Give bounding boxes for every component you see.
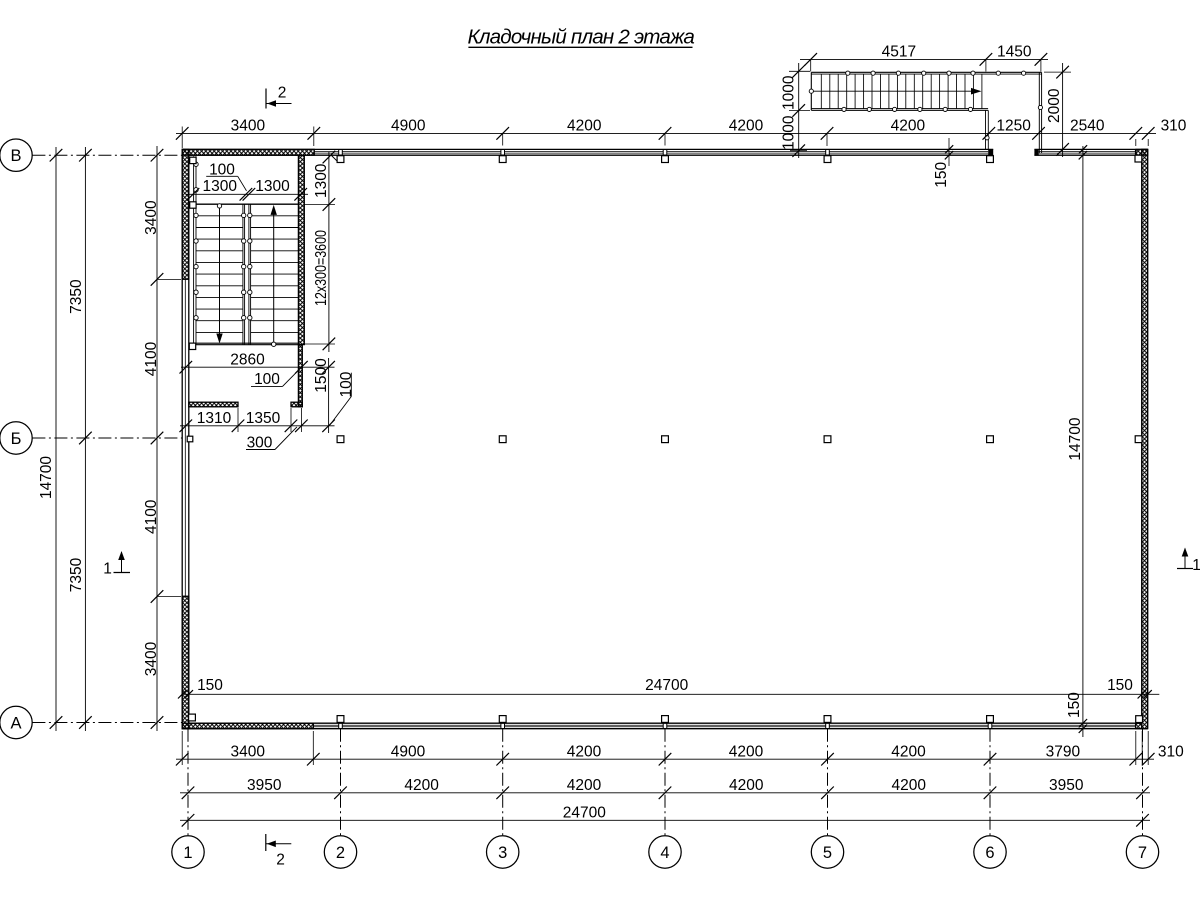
svg-text:4200: 4200: [729, 777, 764, 794]
svg-text:1: 1: [1192, 557, 1200, 574]
svg-text:12х300=3600: 12х300=3600: [313, 230, 330, 306]
svg-text:2540: 2540: [1070, 118, 1105, 135]
svg-text:1000: 1000: [781, 115, 798, 150]
svg-text:3400: 3400: [143, 200, 160, 235]
svg-text:1: 1: [183, 844, 192, 862]
svg-text:4200: 4200: [891, 743, 926, 760]
svg-text:1300: 1300: [255, 178, 290, 195]
svg-text:3400: 3400: [230, 743, 265, 760]
svg-text:4200: 4200: [891, 118, 926, 135]
svg-text:310: 310: [1158, 743, 1184, 760]
svg-text:2860: 2860: [230, 351, 265, 368]
svg-text:24700: 24700: [645, 677, 688, 694]
svg-text:14700: 14700: [38, 456, 55, 499]
svg-text:1: 1: [103, 561, 112, 578]
svg-text:3950: 3950: [1049, 777, 1084, 794]
svg-text:2: 2: [336, 844, 345, 862]
svg-text:3790: 3790: [1046, 743, 1081, 760]
svg-text:4: 4: [660, 844, 669, 862]
svg-text:5: 5: [823, 844, 832, 862]
svg-text:150: 150: [1066, 692, 1083, 718]
svg-text:2: 2: [276, 851, 285, 868]
svg-text:2: 2: [278, 85, 287, 102]
svg-text:150: 150: [197, 677, 223, 694]
svg-text:1250: 1250: [996, 118, 1031, 135]
svg-text:150: 150: [933, 161, 950, 187]
svg-text:1500: 1500: [313, 358, 330, 393]
svg-text:3400: 3400: [143, 641, 160, 676]
svg-text:100: 100: [254, 371, 280, 388]
svg-text:1310: 1310: [197, 410, 232, 427]
svg-text:3950: 3950: [247, 777, 282, 794]
svg-text:4200: 4200: [729, 743, 764, 760]
svg-text:А: А: [10, 714, 21, 732]
svg-text:310: 310: [1161, 118, 1187, 135]
svg-text:4200: 4200: [567, 743, 602, 760]
svg-text:6: 6: [985, 844, 994, 862]
svg-text:3400: 3400: [231, 118, 266, 135]
svg-text:4200: 4200: [892, 777, 927, 794]
svg-text:1000: 1000: [781, 75, 798, 110]
svg-text:100: 100: [338, 371, 355, 397]
svg-text:4900: 4900: [391, 118, 426, 135]
svg-text:7: 7: [1138, 844, 1147, 862]
svg-text:300: 300: [247, 434, 273, 451]
svg-text:1300: 1300: [202, 178, 237, 195]
svg-text:2000: 2000: [1046, 88, 1063, 123]
svg-text:4517: 4517: [882, 44, 916, 61]
svg-text:1300: 1300: [313, 163, 330, 198]
svg-text:1450: 1450: [997, 44, 1032, 61]
svg-text:4200: 4200: [729, 118, 764, 135]
svg-text:4200: 4200: [567, 777, 602, 794]
svg-text:4200: 4200: [404, 777, 439, 794]
svg-text:7350: 7350: [68, 279, 85, 314]
svg-text:4900: 4900: [391, 743, 426, 760]
svg-text:150: 150: [1107, 677, 1133, 694]
svg-text:Б: Б: [11, 430, 22, 448]
svg-text:4100: 4100: [143, 341, 160, 376]
svg-text:Кладочный план 2 этажа: Кладочный план 2 этажа: [468, 26, 695, 49]
svg-text:4200: 4200: [567, 118, 602, 135]
svg-text:24700: 24700: [563, 805, 606, 822]
svg-text:4100: 4100: [143, 499, 160, 534]
svg-text:В: В: [10, 147, 21, 165]
svg-text:7350: 7350: [68, 557, 85, 592]
svg-text:1350: 1350: [246, 410, 281, 427]
svg-text:3: 3: [498, 844, 507, 862]
svg-text:14700: 14700: [1067, 417, 1084, 460]
